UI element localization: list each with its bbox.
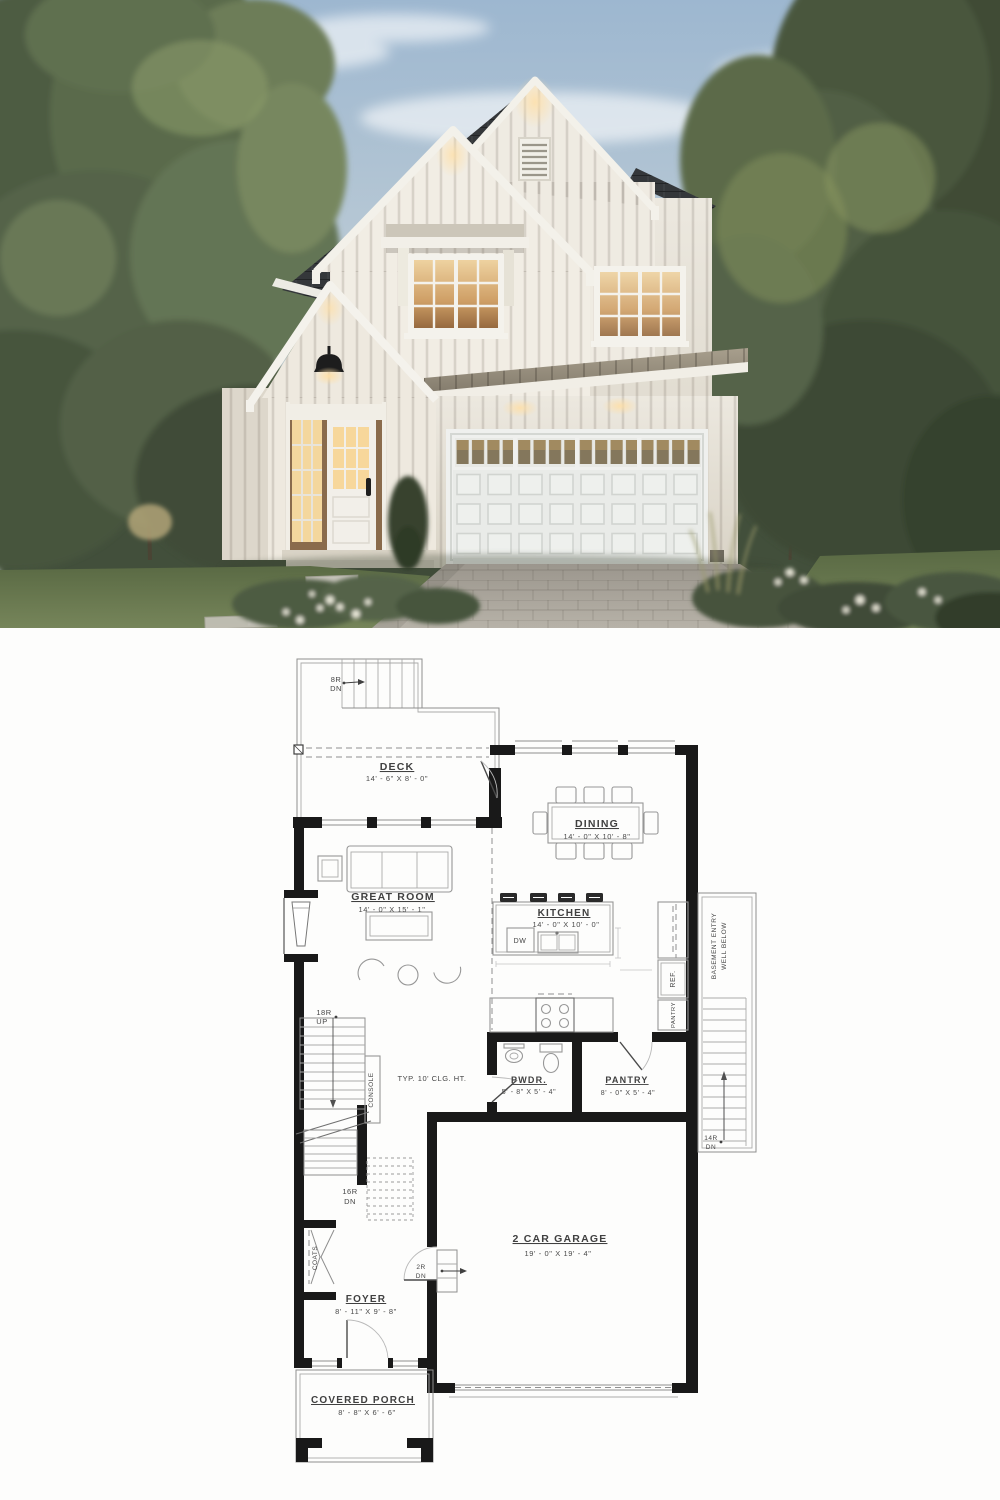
- entry: [286, 402, 386, 554]
- fridge-label: REF.: [670, 970, 677, 987]
- pantry-dims: 8' - 0" X 5' - 4": [601, 1090, 655, 1097]
- dimension-lines: [496, 928, 652, 970]
- fireplace: [284, 890, 318, 962]
- sidelight-window: [292, 420, 322, 542]
- gable-louver-vent: [519, 138, 550, 180]
- front-door-plan: [347, 1320, 388, 1358]
- foyer-dims: 8' - 11" X 9' - 8": [335, 1307, 397, 1316]
- pin-page: 8R DN DECK 14' - 6" X 8' - 0": [0, 0, 1000, 1500]
- dining-dims: 14' - 0" X 10' - 8": [563, 832, 630, 841]
- house-photo-svg: [0, 0, 1000, 628]
- console-label: CONSOLE: [368, 1072, 375, 1107]
- front-door: [327, 420, 376, 550]
- stair-16r-label: 16R: [342, 1187, 357, 1196]
- dining-title: DINING: [575, 818, 619, 830]
- garage-door: [446, 429, 708, 565]
- stair-8r-label: 8R: [331, 675, 342, 684]
- great-room-title: GREAT ROOM: [351, 891, 435, 903]
- kitchen-dims: 14' - 0" X 10' - 0": [532, 920, 599, 929]
- stair-14r-dn: DN: [706, 1144, 716, 1151]
- kitchen-counter: [490, 994, 613, 1032]
- coats-label: COATS: [312, 1246, 319, 1271]
- great-room-furniture: [318, 846, 463, 988]
- kitchen-sink: [538, 931, 578, 953]
- kitchen-title: KITCHEN: [538, 908, 591, 919]
- pantry-cabinet-label: PANTRY: [671, 1002, 677, 1028]
- great-room-dims: 14' - 0" X 15' - 1": [358, 905, 425, 914]
- stair-18r-label: 18R: [316, 1008, 331, 1017]
- deck-dims: 14' - 6" X 8' - 0": [366, 774, 428, 783]
- stair-18r-up: UP: [316, 1017, 327, 1026]
- basement-entry-label-1: BASEMENT ENTRY: [711, 913, 718, 980]
- garage-dims: 19' - 0" X 19' - 4": [524, 1249, 591, 1258]
- house-photo: [0, 0, 1000, 628]
- floor-plan-drawing: 8R DN DECK 14' - 6" X 8' - 0": [0, 628, 1000, 1500]
- island-stools: [500, 893, 603, 902]
- garage-door-plan: [449, 1385, 678, 1397]
- dishwasher-label: DW: [514, 938, 527, 945]
- ceiling-note: TYP. 10' CLG. HT.: [398, 1074, 467, 1083]
- pantry-door: [620, 1042, 652, 1070]
- foyer-title: FOYER: [346, 1294, 386, 1305]
- floor-plan: 8R DN DECK 14' - 6" X 8' - 0": [0, 628, 1000, 1500]
- pantry-title: PANTRY: [605, 1075, 648, 1085]
- powder-dims: 5' - 8" X 5' - 4": [502, 1089, 556, 1096]
- porch-dims: 8' - 8" X 6' - 6": [338, 1408, 396, 1417]
- basement-entry-label-2: WELL BELOW: [721, 922, 728, 970]
- deck-title: DECK: [380, 761, 415, 773]
- stair-2r-dn: DN: [416, 1273, 426, 1280]
- stair-8r-dn: DN: [330, 684, 342, 693]
- garage-title: 2 CAR GARAGE: [513, 1233, 608, 1245]
- stair-16r-dn: DN: [344, 1197, 356, 1206]
- upper-window: [404, 254, 508, 339]
- deck-outline: [294, 659, 499, 817]
- stair-14r-label: 14R: [704, 1135, 717, 1142]
- stair-2r-label: 2R: [416, 1264, 425, 1271]
- door-handle: [366, 478, 371, 496]
- first-floor: [424, 396, 738, 568]
- right-upper-window: [591, 266, 689, 347]
- powder-title: PWDR.: [511, 1075, 547, 1085]
- porch-title: COVERED PORCH: [311, 1395, 415, 1406]
